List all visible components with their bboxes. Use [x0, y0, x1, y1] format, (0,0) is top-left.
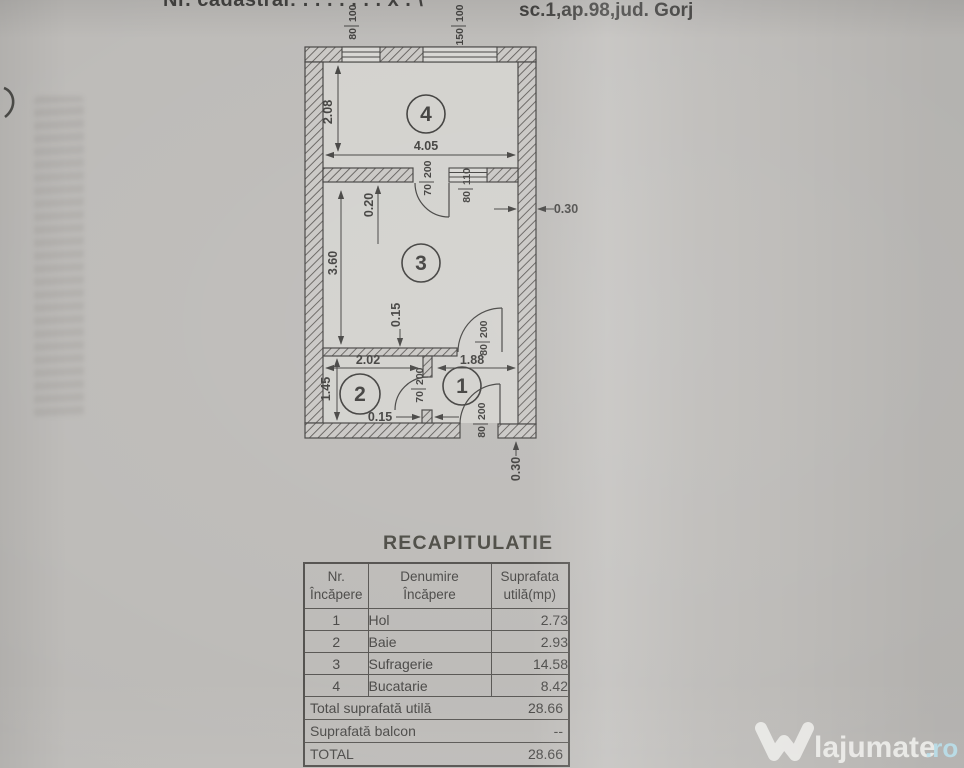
svg-text:2: 2 — [354, 383, 366, 406]
cell-room-area: 2.73 — [491, 609, 569, 631]
summary-value: -- — [554, 723, 568, 739]
svg-text:4: 4 — [420, 103, 432, 126]
svg-text:150: 150 — [454, 28, 466, 46]
dim-partition-thickness: 0.15 — [368, 410, 392, 424]
table-row: 3 Sufragerie 14.58 — [304, 653, 569, 675]
cell-room-name: Sufragerie — [368, 653, 491, 675]
svg-text:200: 200 — [478, 320, 490, 338]
wall-living-hall — [323, 348, 457, 356]
label-door-entrance: 80 200 — [473, 402, 488, 437]
label-window-interior: 80 110 — [458, 168, 473, 203]
address-line: sc.1,ap.98,jud. Gorj — [519, 0, 693, 22]
svg-text:80: 80 — [478, 344, 490, 356]
col-header-nr: Nr.Încăpere — [304, 563, 368, 609]
dim-door-offset: 0.20 — [362, 193, 376, 217]
cell-room-name: Bucatarie — [368, 675, 491, 697]
table-row: 1 Hol 2.73 — [304, 609, 569, 631]
wall-kitchen-living-left — [323, 168, 413, 182]
cadastral-number-line: Nr. cadastral: . . . . . . . x . \ — [163, 0, 423, 12]
cell-room-name: Baie — [368, 631, 491, 653]
summary-row-balcon: Suprafată balcon -- — [304, 720, 569, 743]
watermark-tld-text: .ro — [925, 733, 958, 763]
dim-room4-width: 4.05 — [414, 139, 438, 153]
summary-row-total-util: Total suprafată utilă 28.66 — [304, 697, 569, 720]
summary-label: TOTAL — [305, 746, 354, 762]
recapitulation-section: Nr.Încăpere DenumireÎncăpere Suprafataut… — [303, 562, 570, 767]
cell-room-nr: 2 — [304, 631, 368, 653]
cell-room-area: 8.42 — [491, 675, 569, 697]
cell-room-nr: 3 — [304, 653, 368, 675]
summary-label: Suprafată balcon — [305, 723, 416, 739]
recap-title: RECAPITULATIE — [383, 532, 553, 555]
svg-text:200: 200 — [476, 402, 488, 420]
dim-room2-height: 1.45 — [319, 377, 333, 401]
dim-wall-thickness-top: 0.15 — [389, 303, 403, 327]
stray-pen-mark — [4, 88, 13, 117]
watermark-brand-text: lajumate — [814, 731, 936, 764]
label-door-bath: 70 200 — [411, 367, 426, 402]
svg-text:80: 80 — [461, 191, 473, 203]
summary-row-total: TOTAL 28.66 — [304, 743, 569, 767]
partition-bottom — [422, 410, 432, 423]
wall-bottom — [305, 423, 460, 438]
label-door-kitchen: 70 200 — [419, 160, 434, 195]
svg-text:110: 110 — [461, 168, 473, 185]
dim-room3-height: 3.60 — [326, 251, 340, 275]
cell-room-area: 2.93 — [491, 631, 569, 653]
svg-text:1: 1 — [456, 375, 468, 398]
summary-value: 28.66 — [528, 700, 568, 716]
wall-right — [518, 62, 536, 424]
header-row: Nr.Încăpere DenumireÎncăpere Suprafataut… — [304, 563, 569, 609]
wall-corner-block — [498, 424, 536, 438]
summary-label: Total suprafată utilă — [305, 700, 431, 716]
svg-text:100: 100 — [454, 4, 466, 22]
watermark: lajumate .ro — [745, 708, 960, 768]
col-header-denumire: DenumireÎncăpere — [368, 563, 491, 609]
label-window-150-100: 150 100 — [451, 4, 466, 45]
svg-text:80: 80 — [476, 426, 488, 438]
cell-room-area: 14.58 — [491, 653, 569, 675]
col-header-suprafata: Suprafatautilă(mp) — [491, 563, 569, 609]
svg-text:80: 80 — [347, 28, 359, 40]
svg-text:70: 70 — [422, 184, 434, 196]
cell-room-nr: 1 — [304, 609, 368, 631]
label-door-living-hall: 80 200 — [475, 320, 490, 355]
wall-kitchen-living-right — [487, 168, 518, 182]
svg-text:200: 200 — [422, 160, 434, 178]
recap-table: Nr.Încăpere DenumireÎncăpere Suprafataut… — [303, 562, 570, 767]
cell-room-nr: 4 — [304, 675, 368, 697]
floor-plan: 2.08 4.05 0.20 3.60 0.15 0.30 2.02 1.88 … — [0, 0, 964, 520]
svg-text:200: 200 — [414, 367, 426, 385]
wall-top — [305, 47, 536, 62]
window-symbol-large — [423, 47, 497, 62]
dim-bottom-wall: 0.30 — [509, 457, 523, 481]
summary-value: 28.66 — [528, 746, 568, 762]
svg-text:3: 3 — [415, 252, 427, 275]
dim-room4-height: 2.08 — [321, 100, 335, 124]
table-row: 2 Baie 2.93 — [304, 631, 569, 653]
table-row: 4 Bucatarie 8.42 — [304, 675, 569, 697]
dim-right-wall: 0.30 — [554, 202, 578, 216]
window-symbol-small — [342, 47, 380, 62]
cell-room-name: Hol — [368, 609, 491, 631]
watermark-logo-icon — [761, 728, 808, 755]
dim-room2-width: 2.02 — [356, 353, 380, 367]
scanned-cadastral-document: { "colors": { "paper": "#bbb9b6", "ink":… — [0, 0, 964, 768]
svg-text:70: 70 — [414, 391, 426, 403]
